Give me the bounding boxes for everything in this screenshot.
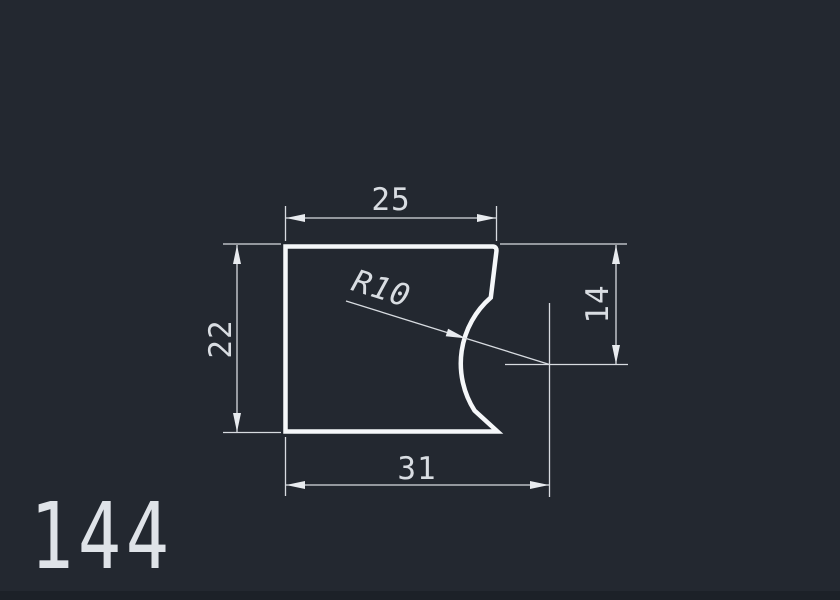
arrowhead-right-icon [530,481,549,489]
dimension-left-height: 22 [203,244,281,433]
arrowhead-up-icon [233,245,241,264]
arrowhead-left-icon [286,214,305,222]
arrowhead-leader-icon [446,329,466,339]
dimension-left-height-label: 22 [203,319,239,358]
dimension-top-width: 25 [286,182,497,241]
dimension-top-width-label: 25 [371,182,410,218]
arrowhead-right-icon [477,214,496,222]
dimension-right-height-label: 14 [580,284,616,323]
viewport-bottom-strip [0,591,840,600]
cad-drawing-viewport: 25 22 14 31 [0,0,840,600]
arrowhead-down-icon [612,345,620,364]
cad-drawing-svg: 25 22 14 31 [0,0,840,600]
dimension-bottom-width-label: 31 [397,451,436,487]
arrowhead-left-icon [286,481,305,489]
part-number-label: 144 [30,483,174,590]
dimension-radius-label: R10 [348,263,415,315]
dimension-radius-leader: R10 [346,263,550,364]
arrowhead-down-icon [233,413,241,432]
arrowhead-up-icon [612,245,620,264]
dimension-right-height: 14 [500,244,628,365]
dimension-bottom-width: 31 [286,303,550,497]
